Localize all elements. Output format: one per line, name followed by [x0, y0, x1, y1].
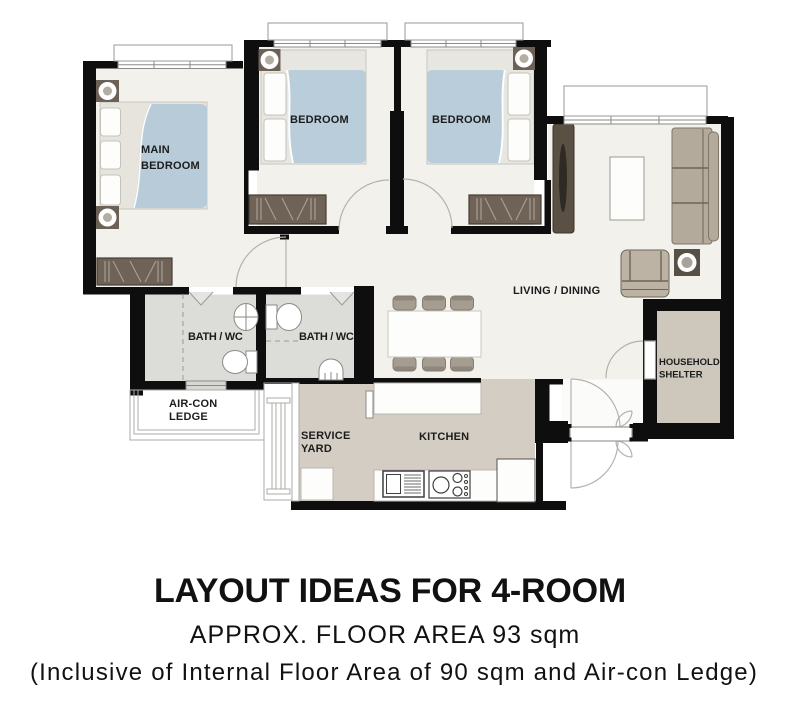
- svg-text:MAIN: MAIN: [141, 144, 170, 156]
- svg-text:LEDGE: LEDGE: [169, 411, 208, 423]
- svg-text:APPROX. FLOOR AREA 93 sqm: APPROX. FLOOR AREA 93 sqm: [190, 621, 580, 649]
- svg-text:(Inclusive of Internal Floor A: (Inclusive of Internal Floor Area of 90 …: [30, 659, 758, 686]
- svg-text:BEDROOM: BEDROOM: [290, 114, 349, 126]
- svg-text:SERVICE: SERVICE: [301, 430, 351, 442]
- svg-text:BATH / WC: BATH / WC: [188, 331, 243, 343]
- svg-text:LAYOUT IDEAS FOR 4-ROOM: LAYOUT IDEAS FOR 4-ROOM: [154, 572, 626, 610]
- svg-text:KITCHEN: KITCHEN: [419, 431, 469, 443]
- svg-text:YARD: YARD: [301, 443, 332, 455]
- svg-text:BATH / WC: BATH / WC: [299, 331, 354, 343]
- svg-text:BEDROOM: BEDROOM: [141, 160, 200, 172]
- svg-text:HOUSEHOLD: HOUSEHOLD: [659, 357, 720, 368]
- svg-text:BEDROOM: BEDROOM: [432, 114, 491, 126]
- svg-text:AIR-CON: AIR-CON: [169, 398, 217, 410]
- svg-text:SHELTER: SHELTER: [659, 370, 703, 381]
- svg-text:LIVING / DINING: LIVING / DINING: [513, 285, 600, 297]
